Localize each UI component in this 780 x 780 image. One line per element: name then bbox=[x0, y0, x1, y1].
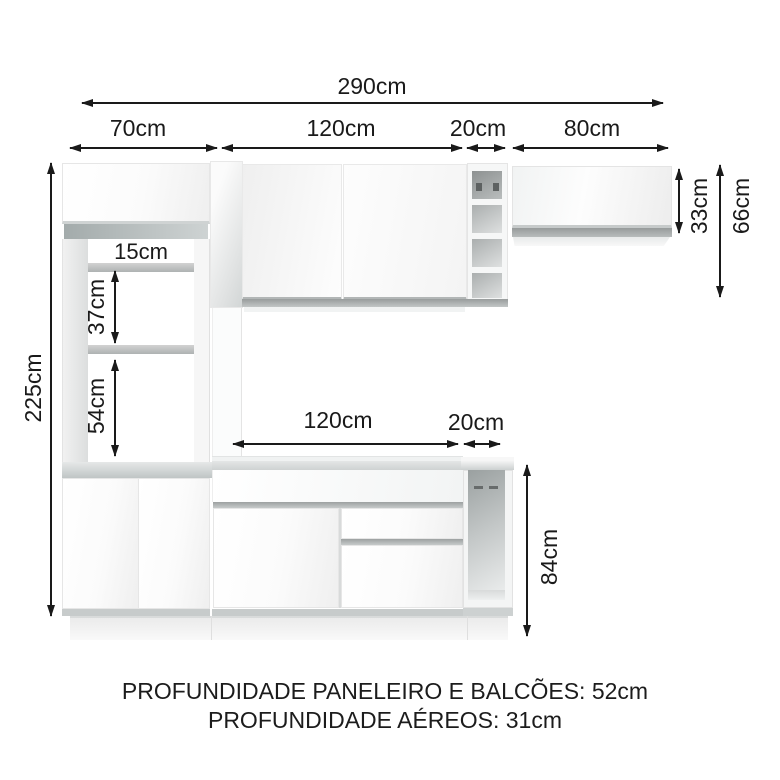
pantry-right-side-panel bbox=[194, 239, 210, 462]
pantry-base-bottom-edge bbox=[62, 609, 210, 616]
dim-label-upper-right-width: 80cm bbox=[564, 115, 620, 141]
dim-label-gap-15: 15cm bbox=[114, 239, 168, 265]
niche-screw-right bbox=[493, 183, 499, 191]
upper-niche-3 bbox=[472, 239, 502, 267]
base-niche-hook-right bbox=[489, 486, 498, 489]
upper-center-underside bbox=[244, 307, 465, 312]
upper-niche-bottom-strip bbox=[467, 299, 508, 307]
dim-label-gap-54: 54cm bbox=[83, 306, 109, 506]
dim-arrow-upper-right-height bbox=[678, 169, 680, 233]
dim-label-upper-niche-width: 20cm bbox=[450, 115, 506, 141]
upper-right-bottom-strip bbox=[512, 228, 672, 237]
dim-arrow-gap-54 bbox=[114, 360, 116, 456]
dim-label-upper-total-height: 66cm bbox=[728, 106, 754, 306]
depth-note-balcony: PROFUNDIDADE PANELEIRO E BALCÕES: 52cm bbox=[0, 677, 770, 705]
upper-center-bottom-strip bbox=[242, 299, 467, 307]
toe-kick-divider-1 bbox=[211, 616, 212, 640]
dim-label-pantry-width: 70cm bbox=[110, 115, 166, 141]
dim-arrow-counter-niche-width bbox=[464, 443, 500, 445]
dim-arrow-total-height bbox=[50, 163, 52, 616]
center-base-top-band bbox=[212, 470, 463, 502]
center-base-counter-top bbox=[212, 461, 463, 470]
upper-center-door-right bbox=[343, 164, 467, 302]
dim-arrow-upper-niche-width bbox=[467, 147, 505, 149]
upper-right-underside bbox=[513, 237, 670, 246]
dim-arrow-upper-center-width bbox=[222, 147, 462, 149]
dim-label-counter-niche-width: 20cm bbox=[448, 409, 504, 435]
depth-note-aereos: PROFUNDIDADE AÉREOS: 31cm bbox=[0, 706, 770, 734]
center-base-drawer-2 bbox=[341, 545, 463, 608]
toe-kick bbox=[70, 616, 508, 640]
dim-label-counter-width: 120cm bbox=[303, 407, 372, 433]
pantry-base-door-right bbox=[138, 478, 210, 609]
dim-arrow-gap-37 bbox=[114, 271, 116, 343]
dim-label-upper-right-height: 33cm bbox=[686, 106, 712, 306]
center-base-bottom-edge bbox=[212, 609, 463, 616]
center-base-door bbox=[213, 508, 339, 608]
dim-label-total-width: 290cm bbox=[337, 73, 406, 99]
hutch-side-panel-bottom bbox=[212, 308, 242, 462]
dim-arrow-pantry-width bbox=[70, 147, 217, 149]
dim-arrow-upper-right-width bbox=[513, 147, 668, 149]
base-niche-top-slab bbox=[461, 457, 514, 470]
dim-arrow-counter-width bbox=[233, 443, 458, 445]
dim-arrow-base-height bbox=[526, 465, 528, 636]
base-niche-bottom-edge bbox=[463, 608, 513, 616]
dim-label-base-height: 84cm bbox=[536, 457, 562, 657]
dim-arrow-upper-total-height bbox=[719, 165, 721, 297]
dim-label-upper-center-width: 120cm bbox=[306, 115, 375, 141]
toe-kick-divider-2 bbox=[467, 616, 468, 640]
upper-niche-4 bbox=[472, 273, 502, 298]
dim-label-total-height: 225cm bbox=[20, 288, 46, 488]
dim-arrow-total-width bbox=[82, 102, 663, 104]
base-niche-floor bbox=[468, 590, 505, 600]
niche-screw-left bbox=[476, 183, 482, 191]
kitchen-dimension-diagram: 290cm 70cm 120cm 20cm 80cm 15cm 120cm 20… bbox=[0, 0, 780, 780]
upper-niche-2 bbox=[472, 205, 502, 233]
center-base-drawer-1 bbox=[341, 508, 463, 539]
hutch-side-panel-top bbox=[210, 161, 243, 308]
upper-center-door-left bbox=[242, 164, 342, 302]
upper-right-door bbox=[512, 166, 672, 228]
base-niche-hook-left bbox=[474, 486, 483, 489]
